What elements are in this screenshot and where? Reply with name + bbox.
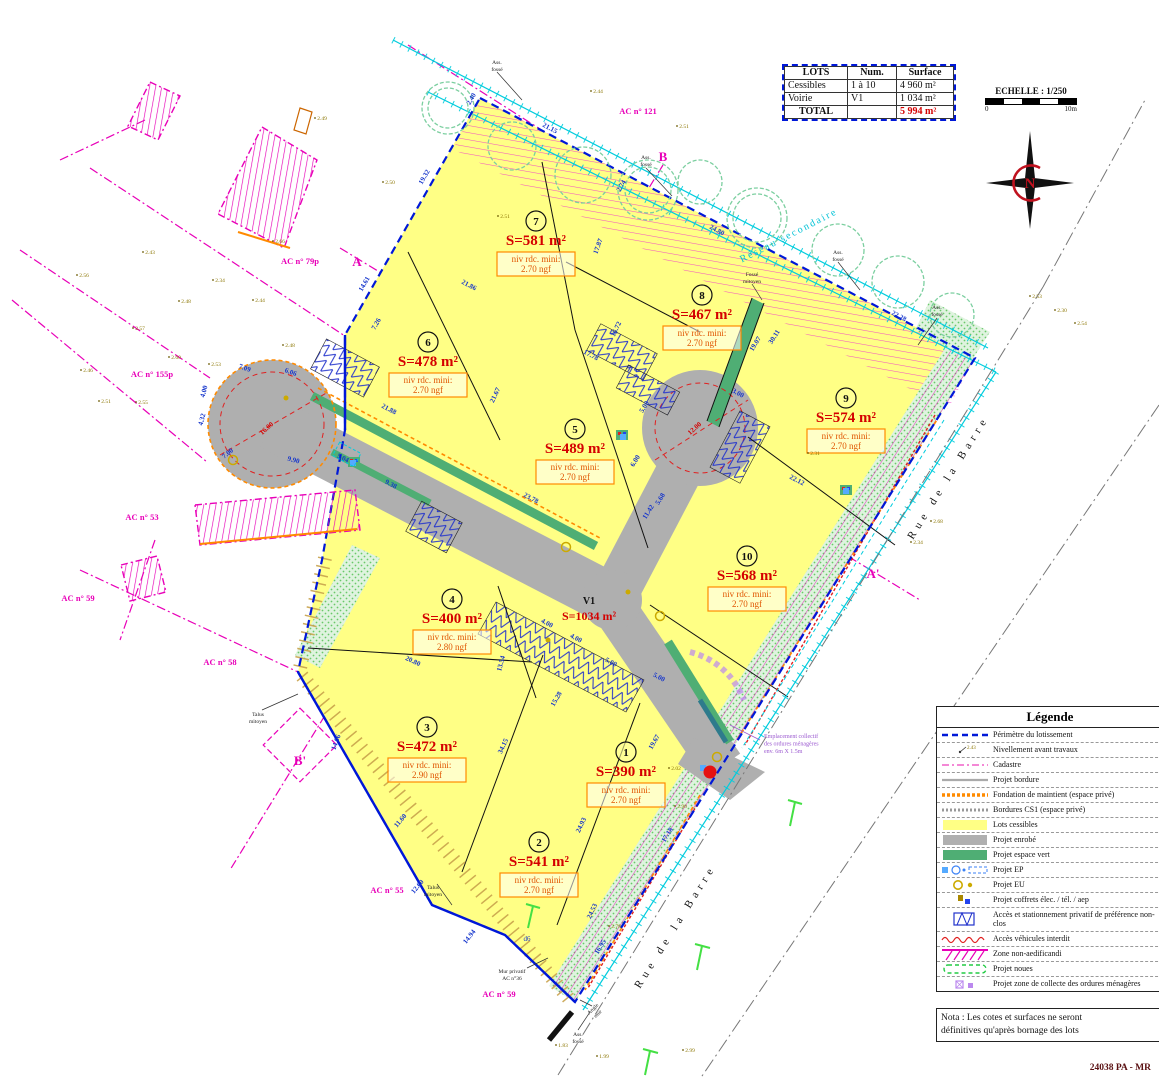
spot-elevation-dot [135, 401, 137, 403]
spot-elevation: 2.44 [255, 298, 265, 304]
legend-item-bordure: Projet bordure [937, 772, 1159, 787]
lot-niv-line2: 2.70 ngf [732, 599, 762, 609]
perimetre-legend-symbol [937, 729, 993, 741]
eu-legend-symbol [937, 879, 993, 891]
lot-surface: S=467 m² [672, 307, 733, 323]
existing-buildings [121, 82, 360, 601]
lot-niv-line2: 2.70 ngf [524, 885, 554, 895]
scale-bar-graphic [985, 98, 1077, 105]
vert-legend-symbol [937, 849, 993, 861]
annotation: Ass.fossé [491, 60, 503, 73]
spot-elevation: 2.02 [671, 766, 681, 772]
spot-elevation-dot [382, 181, 384, 183]
legend-item-vert: Projet espace vert [937, 847, 1159, 862]
fondation-legend-symbol [937, 789, 993, 801]
spot-elevation-dot [252, 299, 254, 301]
nivellement-legend-symbol: 2.43 [937, 744, 993, 756]
dimension-label: 14.61 [357, 275, 372, 293]
spot-elevation: 1.83 [558, 1043, 568, 1049]
row-total-surface: 5 994 m² [897, 106, 954, 119]
north-arrow: N [986, 131, 1074, 229]
spot-elevation: 2.46 [83, 368, 93, 374]
legend-item-acces: Accès et stationnement privatif de préfé… [937, 907, 1159, 931]
parcel-label: AC n° 121 [619, 106, 656, 116]
lot-surface: S=472 m² [397, 739, 458, 755]
scale-start: 0 [985, 105, 989, 113]
annotation: Ass.fossé [931, 305, 943, 318]
lot-number: 1 [623, 747, 629, 759]
lot-number: 9 [843, 393, 849, 405]
annotation: Talusmitoyen [249, 712, 267, 725]
legend-item-label: Bordures CS1 (espace privé) [993, 803, 1087, 816]
spot-elevation-dot [807, 452, 809, 454]
spot-elevation: 2.43 [145, 250, 155, 256]
legend-item-label: Fondation de maintient (espace privé) [993, 788, 1116, 801]
lot-surface: S=541 m² [509, 854, 570, 870]
lot-surface: S=489 m² [545, 441, 606, 457]
lot-number: 2 [536, 837, 542, 849]
lot-surface: S=478 m² [398, 354, 459, 370]
spot-elevation-dot [132, 327, 134, 329]
table-header-surface: Surface [897, 67, 954, 80]
legend-item-label: Accès véhicules interdit [993, 932, 1072, 945]
spot-elevation: 2.56 [79, 273, 89, 279]
spot-elevation-dot [608, 925, 610, 927]
lot-niv-line1: niv rdc. mini: [822, 431, 871, 441]
row-cessibles-surface: 4 960 m² [897, 80, 954, 93]
parcel-label: AC n° 58 [203, 657, 236, 667]
spot-elevation-dot [674, 805, 676, 807]
spot-elevation: 2.49 [317, 116, 327, 122]
bordure-legend-symbol [937, 774, 993, 786]
dimension-label: 19.32 [417, 168, 432, 186]
enrobe-legend-symbol [937, 834, 993, 846]
lot-niv-line2: 2.80 ngf [437, 642, 467, 652]
spot-elevation: 2.44 [593, 89, 603, 95]
spot-elevation: 2.50 [385, 180, 395, 186]
legend-title: Légende [937, 707, 1159, 728]
annotation: d6 [524, 935, 532, 943]
lot-number: 10 [742, 551, 754, 563]
legend-item-zone: Zone non-aedificandi [937, 946, 1159, 961]
table-row: Voirie V1 1 034 m² [785, 93, 954, 106]
spot-elevation: 2.53 [211, 362, 221, 368]
parcel-label: AC n° 155p [131, 369, 173, 379]
legend-item-label: Cadastre [993, 758, 1023, 771]
spot-elevation: 2.51 [101, 399, 111, 405]
lot-surface: S=581 m² [506, 233, 567, 249]
spot-elevation-dot [596, 1055, 598, 1057]
drawing-reference: 24038 PA - MR [1090, 1063, 1151, 1073]
legend-item-label: Projet EU [993, 878, 1027, 891]
row-cessibles-label: Cessibles [785, 80, 848, 93]
spot-elevation: 2.48 [181, 299, 191, 305]
spot-elevation: 2.34 [215, 278, 225, 284]
spot-elevation-dot [1074, 322, 1076, 324]
spot-elevation: 2.34 [913, 540, 923, 546]
north-label: N [1025, 176, 1036, 192]
spot-elevation-dot [555, 1044, 557, 1046]
spot-elevation: 2.99 [685, 1048, 695, 1054]
spot-elevation-dot [1054, 309, 1056, 311]
spot-elevation-dot [212, 279, 214, 281]
legend-item-collecte: Projet zone de collecte des ordures ména… [937, 976, 1159, 991]
spot-elevation-dot [590, 90, 592, 92]
legend-item-enrobe: Projet enrobé [937, 832, 1159, 847]
lot-niv-line1: niv rdc. mini: [404, 375, 453, 385]
interdit-legend-symbol [937, 933, 993, 945]
cadastre-legend-symbol [937, 759, 993, 771]
spot-elevation-dot [178, 300, 180, 302]
spot-elevation-dot [676, 125, 678, 127]
lot-niv-line2: 2.70 ngf [687, 338, 717, 348]
spot-elevation: 2.57 [135, 326, 145, 332]
annotation: Ass.fossé [572, 1032, 584, 1045]
table-row-total: TOTAL 5 994 m² [785, 106, 954, 119]
lot-number: 7 [533, 216, 539, 228]
lot-niv-line1: niv rdc. mini: [403, 760, 452, 770]
scale-label: ECHELLE : 1/250 [985, 86, 1077, 96]
lot-surface: S=568 m² [717, 568, 778, 584]
spot-elevation-dot [208, 363, 210, 365]
spot-elevation: 2.78 [611, 924, 621, 930]
legend-item-nivellement: 2.43Nivellement avant travaux [937, 742, 1159, 757]
legend-item-label: Zone non-aedificandi [993, 947, 1064, 960]
svg-text:2.43: 2.43 [967, 746, 976, 751]
spot-elevation-dot [682, 1049, 684, 1051]
legend-item-label: Projet bordure [993, 773, 1041, 786]
voirie-surface: S=1034 m² [562, 609, 617, 623]
spot-elevation-dot [282, 344, 284, 346]
zone-legend-symbol [937, 947, 993, 961]
lot-niv-line1: niv rdc. mini: [551, 462, 600, 472]
lot-number: 4 [449, 594, 455, 606]
nota-box: Nota : Les cotes et surfaces ne seront d… [936, 1008, 1159, 1042]
spot-elevation-dot [76, 274, 78, 276]
ep-legend-symbol [937, 864, 993, 876]
lot-surface: S=574 m² [816, 410, 877, 426]
legend-item-interdit: Accès véhicules interdit [937, 931, 1159, 946]
parcel-label: AC n° 55 [370, 885, 403, 895]
lot-number: 8 [699, 290, 705, 302]
scale-end: 10m [1065, 105, 1077, 113]
collecte-legend-symbol [937, 978, 993, 990]
lot-surface: S=390 m² [596, 764, 657, 780]
lot-niv-line1: niv rdc. mini: [428, 632, 477, 642]
row-total-label: TOTAL [785, 106, 848, 119]
surfaces-table: LOTS Num. Surface Cessibles 1 à 10 4 960… [782, 64, 956, 121]
spot-elevation: 2.30 [1057, 308, 1067, 314]
spot-elevation: 2.51 [500, 214, 510, 220]
spot-elevation-dot [98, 400, 100, 402]
legend-item-lots: Lots cessibles [937, 817, 1159, 832]
lot-niv-line1: niv rdc. mini: [678, 328, 727, 338]
legend-item-cs1: Bordures CS1 (espace privé) [937, 802, 1159, 817]
parcel-label: AC n° 59 [61, 593, 94, 603]
hydrant-dot [704, 766, 717, 779]
lot-number: 5 [572, 424, 578, 436]
legend-item-label: Projet zone de collecte des ordures ména… [993, 977, 1143, 990]
lot-niv-line1: niv rdc. mini: [602, 785, 651, 795]
parcel-label: AC n° 53 [125, 512, 158, 522]
legend-item-noues: Projet noues [937, 961, 1159, 976]
noues-legend-symbol [937, 963, 993, 975]
row-voirie-label: Voirie [785, 93, 848, 106]
section-marker: A [352, 254, 362, 269]
spot-elevation-dot [668, 767, 670, 769]
legend: Légende Périmètre du lotissement2.43Nive… [936, 706, 1159, 992]
lot-niv-line2: 2.70 ngf [521, 264, 551, 274]
legend-item-label: Projet noues [993, 962, 1035, 975]
legend-item-label: Projet coffrets élec. / tél. / aep [993, 893, 1091, 906]
spot-elevation-dot [497, 215, 499, 217]
table-header-num: Num. [848, 67, 897, 80]
spot-elevation: 2.90 [677, 804, 687, 810]
lot-number: 3 [424, 722, 430, 734]
spot-elevation-dot [142, 251, 144, 253]
cs1-legend-symbol [937, 804, 993, 816]
dimension-label: 4.00 [199, 384, 210, 398]
legend-item-eu: Projet EU [937, 877, 1159, 892]
spot-elevation-dot [272, 240, 274, 242]
lot-niv-line1: niv rdc. mini: [515, 875, 564, 885]
spot-elevation-dot [314, 117, 316, 119]
spot-elevation: 2.54 [1077, 321, 1087, 327]
row-voirie-num: V1 [848, 93, 897, 106]
section-marker: B' [294, 753, 306, 768]
spot-elevation-dot [910, 541, 912, 543]
annotation: Mur privatifAC n°36 [498, 968, 525, 982]
scale-bar: ECHELLE : 1/250 0 10m [985, 86, 1077, 113]
lot-niv-line2: 2.70 ngf [413, 385, 443, 395]
table-row: Cessibles 1 à 10 4 960 m² [785, 80, 954, 93]
dimension-label: 4.32 [197, 412, 208, 426]
plan-sheet: N 1S=390 m²niv rdc. mini:2.70 ngf2S=541 … [0, 0, 1159, 1079]
lot-surface: S=400 m² [422, 611, 483, 627]
legend-item-label: Projet EP [993, 863, 1025, 876]
spot-elevation: 2.68 [933, 519, 943, 525]
legend-item-label: Nivellement avant travaux [993, 743, 1080, 756]
legend-item-label: Projet espace vert [993, 848, 1052, 861]
wall-bar [549, 1012, 572, 1040]
legend-item-label: Périmètre du lotissement [993, 728, 1075, 741]
lot-niv-line1: niv rdc. mini: [512, 254, 561, 264]
legend-item-perimetre: Périmètre du lotissement [937, 728, 1159, 742]
spot-elevation-dot [930, 520, 932, 522]
lot-number: 6 [425, 337, 431, 349]
nota-line1: Nota : Les cotes et surfaces ne seront [941, 1012, 1159, 1025]
spot-elevation: 2.55 [138, 400, 148, 406]
spot-elevation: 2.53 [1032, 294, 1042, 300]
spot-elevation: 1.99 [599, 1054, 609, 1060]
legend-item-fondation: Fondation de maintient (espace privé) [937, 787, 1159, 802]
spot-elevation: 2.51 [679, 124, 689, 130]
spot-elevation-dot [1029, 295, 1031, 297]
voirie-label: V1 [583, 596, 595, 607]
lot-niv-line2: 2.70 ngf [611, 795, 641, 805]
row-total-num [848, 106, 897, 119]
annotation: Ass.fossé [832, 250, 844, 263]
spot-elevation: 2.31 [810, 451, 820, 457]
legend-item-cadastre: Cadastre [937, 757, 1159, 772]
lots-legend-symbol [937, 819, 993, 831]
section-marker: B [659, 149, 668, 164]
row-voirie-surface: 1 034 m² [897, 93, 954, 106]
spot-elevation: 2.66 [275, 239, 285, 245]
lot-niv-line2: 2.90 ngf [412, 770, 442, 780]
annotation: Réseau secondaire [738, 206, 839, 265]
spot-elevation-dot [168, 356, 170, 358]
legend-item-coffrets: Projet coffrets élec. / tél. / aep [937, 892, 1159, 907]
annotation: Ass.fossé [640, 155, 652, 168]
lot-niv-line2: 2.70 ngf [831, 441, 861, 451]
table-header-lots: LOTS [785, 67, 848, 80]
legend-item-label: Accès et stationnement privatif de préfé… [993, 908, 1159, 931]
legend-item-label: Lots cessibles [993, 818, 1040, 831]
spot-elevation: 2.60 [171, 355, 181, 361]
coffrets-legend-symbol [937, 894, 993, 906]
acces-legend-symbol [937, 912, 993, 926]
spot-elevation: 2.48 [285, 343, 295, 349]
spot-elevation-dot [80, 369, 82, 371]
lot-niv-line2: 2.70 ngf [560, 472, 590, 482]
parcel-label: AC n° 79p [281, 256, 319, 266]
nota-line2: définitives qu'après bornage des lots [941, 1025, 1159, 1038]
section-marker: A' [867, 566, 880, 581]
legend-item-label: Projet enrobé [993, 833, 1038, 846]
legend-item-ep: Projet EP [937, 862, 1159, 877]
annotation: Emplacement collectifdes ordures ménagèr… [764, 733, 819, 755]
lot-niv-line1: niv rdc. mini: [723, 589, 772, 599]
parcel-label: AC n° 59 [482, 989, 515, 999]
row-cessibles-num: 1 à 10 [848, 80, 897, 93]
dimension-label: 14.94 [461, 928, 477, 946]
